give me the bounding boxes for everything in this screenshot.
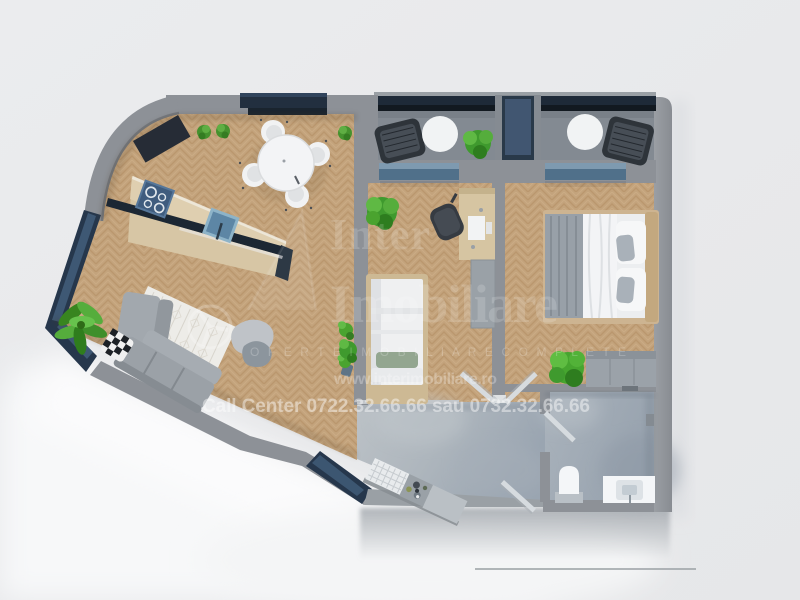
- svg-text:Imobiliare: Imobiliare: [330, 274, 558, 334]
- svg-text:www.interimobiliare.ro: www.interimobiliare.ro: [333, 371, 497, 388]
- svg-text:Call Center 0722.32.66.66 sau: Call Center 0722.32.66.66 sau 0732.32.66…: [202, 396, 590, 417]
- svg-text:Inter: Inter: [330, 210, 430, 259]
